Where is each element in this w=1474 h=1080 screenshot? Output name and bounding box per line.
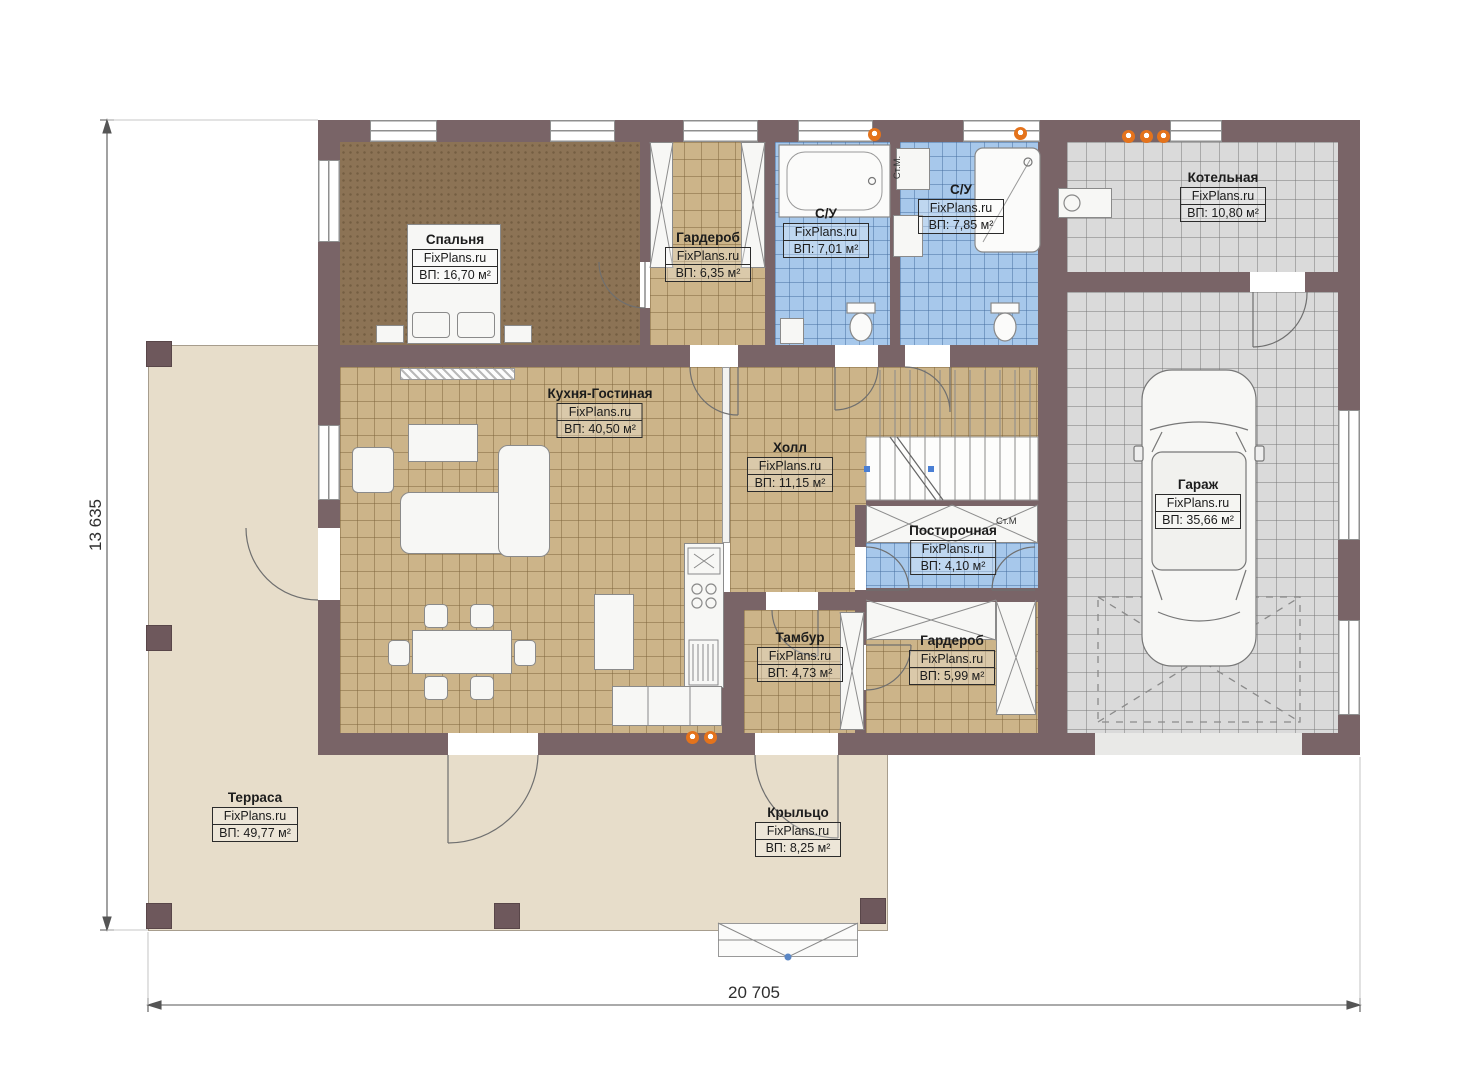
dimension-height: 13 635 [86,499,106,551]
counter-dividers [648,686,690,726]
brand-watermark: FixPlans.ru [213,808,297,825]
brand-watermark: FixPlans.ru [911,541,995,558]
brand-watermark: FixPlans.ru [666,248,750,265]
brand-watermark: FixPlans.ru [748,458,832,475]
room-label-bedroom: Спальня FixPlans.ru ВП: 16,70 м² [412,232,498,284]
brand-watermark: FixPlans.ru [1156,495,1240,512]
kitchen-sink [688,548,720,574]
room-label-laundry: Постирочная FixPlans.ru ВП: 4,10 м² [909,523,997,575]
room-label-boiler: Котельная FixPlans.ru ВП: 10,80 м² [1180,170,1266,222]
room-area: ВП: 7,01 м² [784,241,868,257]
room-area: ВП: 10,80 м² [1181,205,1265,221]
room-label-kitchen-living: Кухня-Гостиная FixPlans.ru ВП: 40,50 м² [548,386,653,438]
room-label-hall: Холл FixPlans.ru ВП: 11,15 м² [747,440,833,492]
brand-watermark: FixPlans.ru [1181,188,1265,205]
room-area: ВП: 4,73 м² [758,665,842,681]
stove-burners [692,584,716,608]
linework-overlay [0,0,1474,1080]
stairs [864,370,1038,500]
brand-watermark: FixPlans.ru [558,404,642,421]
room-label-garage: Гараж FixPlans.ru ВП: 35,66 м² [1155,477,1241,529]
riser-dot [1014,127,1027,140]
brand-watermark: FixPlans.ru [413,250,497,267]
room-label-porch: Крыльцо FixPlans.ru ВП: 8,25 м² [755,805,841,857]
room-area: ВП: 8,25 м² [756,840,840,856]
floor-plan: Ст.М. Ст.М Спальня FixPlans.ru ВП: 16,70… [0,0,1474,1080]
riser-dot [686,731,699,744]
riser-dot [1122,130,1135,143]
brand-watermark: FixPlans.ru [758,648,842,665]
boiler-unit [1064,195,1080,211]
room-label-tambur: Тамбур FixPlans.ru ВП: 4,73 м² [757,630,843,682]
riser-dot [1140,130,1153,143]
riser-dot [868,128,881,141]
room-area: ВП: 5,99 м² [910,668,994,684]
room-area: ВП: 6,35 м² [666,265,750,281]
riser-dot [1157,130,1170,143]
riser-dot [704,731,717,744]
room-label-bath1: С/У FixPlans.ru ВП: 7,01 м² [783,206,869,258]
room-label-bath2: С/У FixPlans.ru ВП: 7,85 м² [918,182,1004,234]
room-label-wardrobe-top: Гардероб FixPlans.ru ВП: 6,35 м² [665,230,751,282]
oven [689,640,718,685]
brand-watermark: FixPlans.ru [919,200,1003,217]
room-area: ВП: 16,70 м² [413,267,497,283]
room-label-wardrobe-bottom: Гардероб FixPlans.ru ВП: 5,99 м² [909,633,995,685]
washer-label-vertical: Ст.М. [892,156,903,179]
brand-watermark: FixPlans.ru [784,224,868,241]
brand-watermark: FixPlans.ru [756,823,840,840]
washer-label-laundry: Ст.М [996,516,1017,527]
room-area: ВП: 11,15 м² [748,475,832,491]
room-area: ВП: 4,10 м² [911,558,995,574]
toilet [847,303,1019,341]
brand-watermark: FixPlans.ru [910,651,994,668]
dimension-width: 20 705 [728,983,780,1003]
room-label-terrace: Терраса FixPlans.ru ВП: 49,77 м² [212,790,298,842]
entrance-steps-lines [718,923,858,961]
room-area: ВП: 49,77 м² [213,825,297,841]
room-area: ВП: 35,66 м² [1156,512,1240,528]
room-area: ВП: 40,50 м² [558,421,642,437]
room-area: ВП: 7,85 м² [919,217,1003,233]
